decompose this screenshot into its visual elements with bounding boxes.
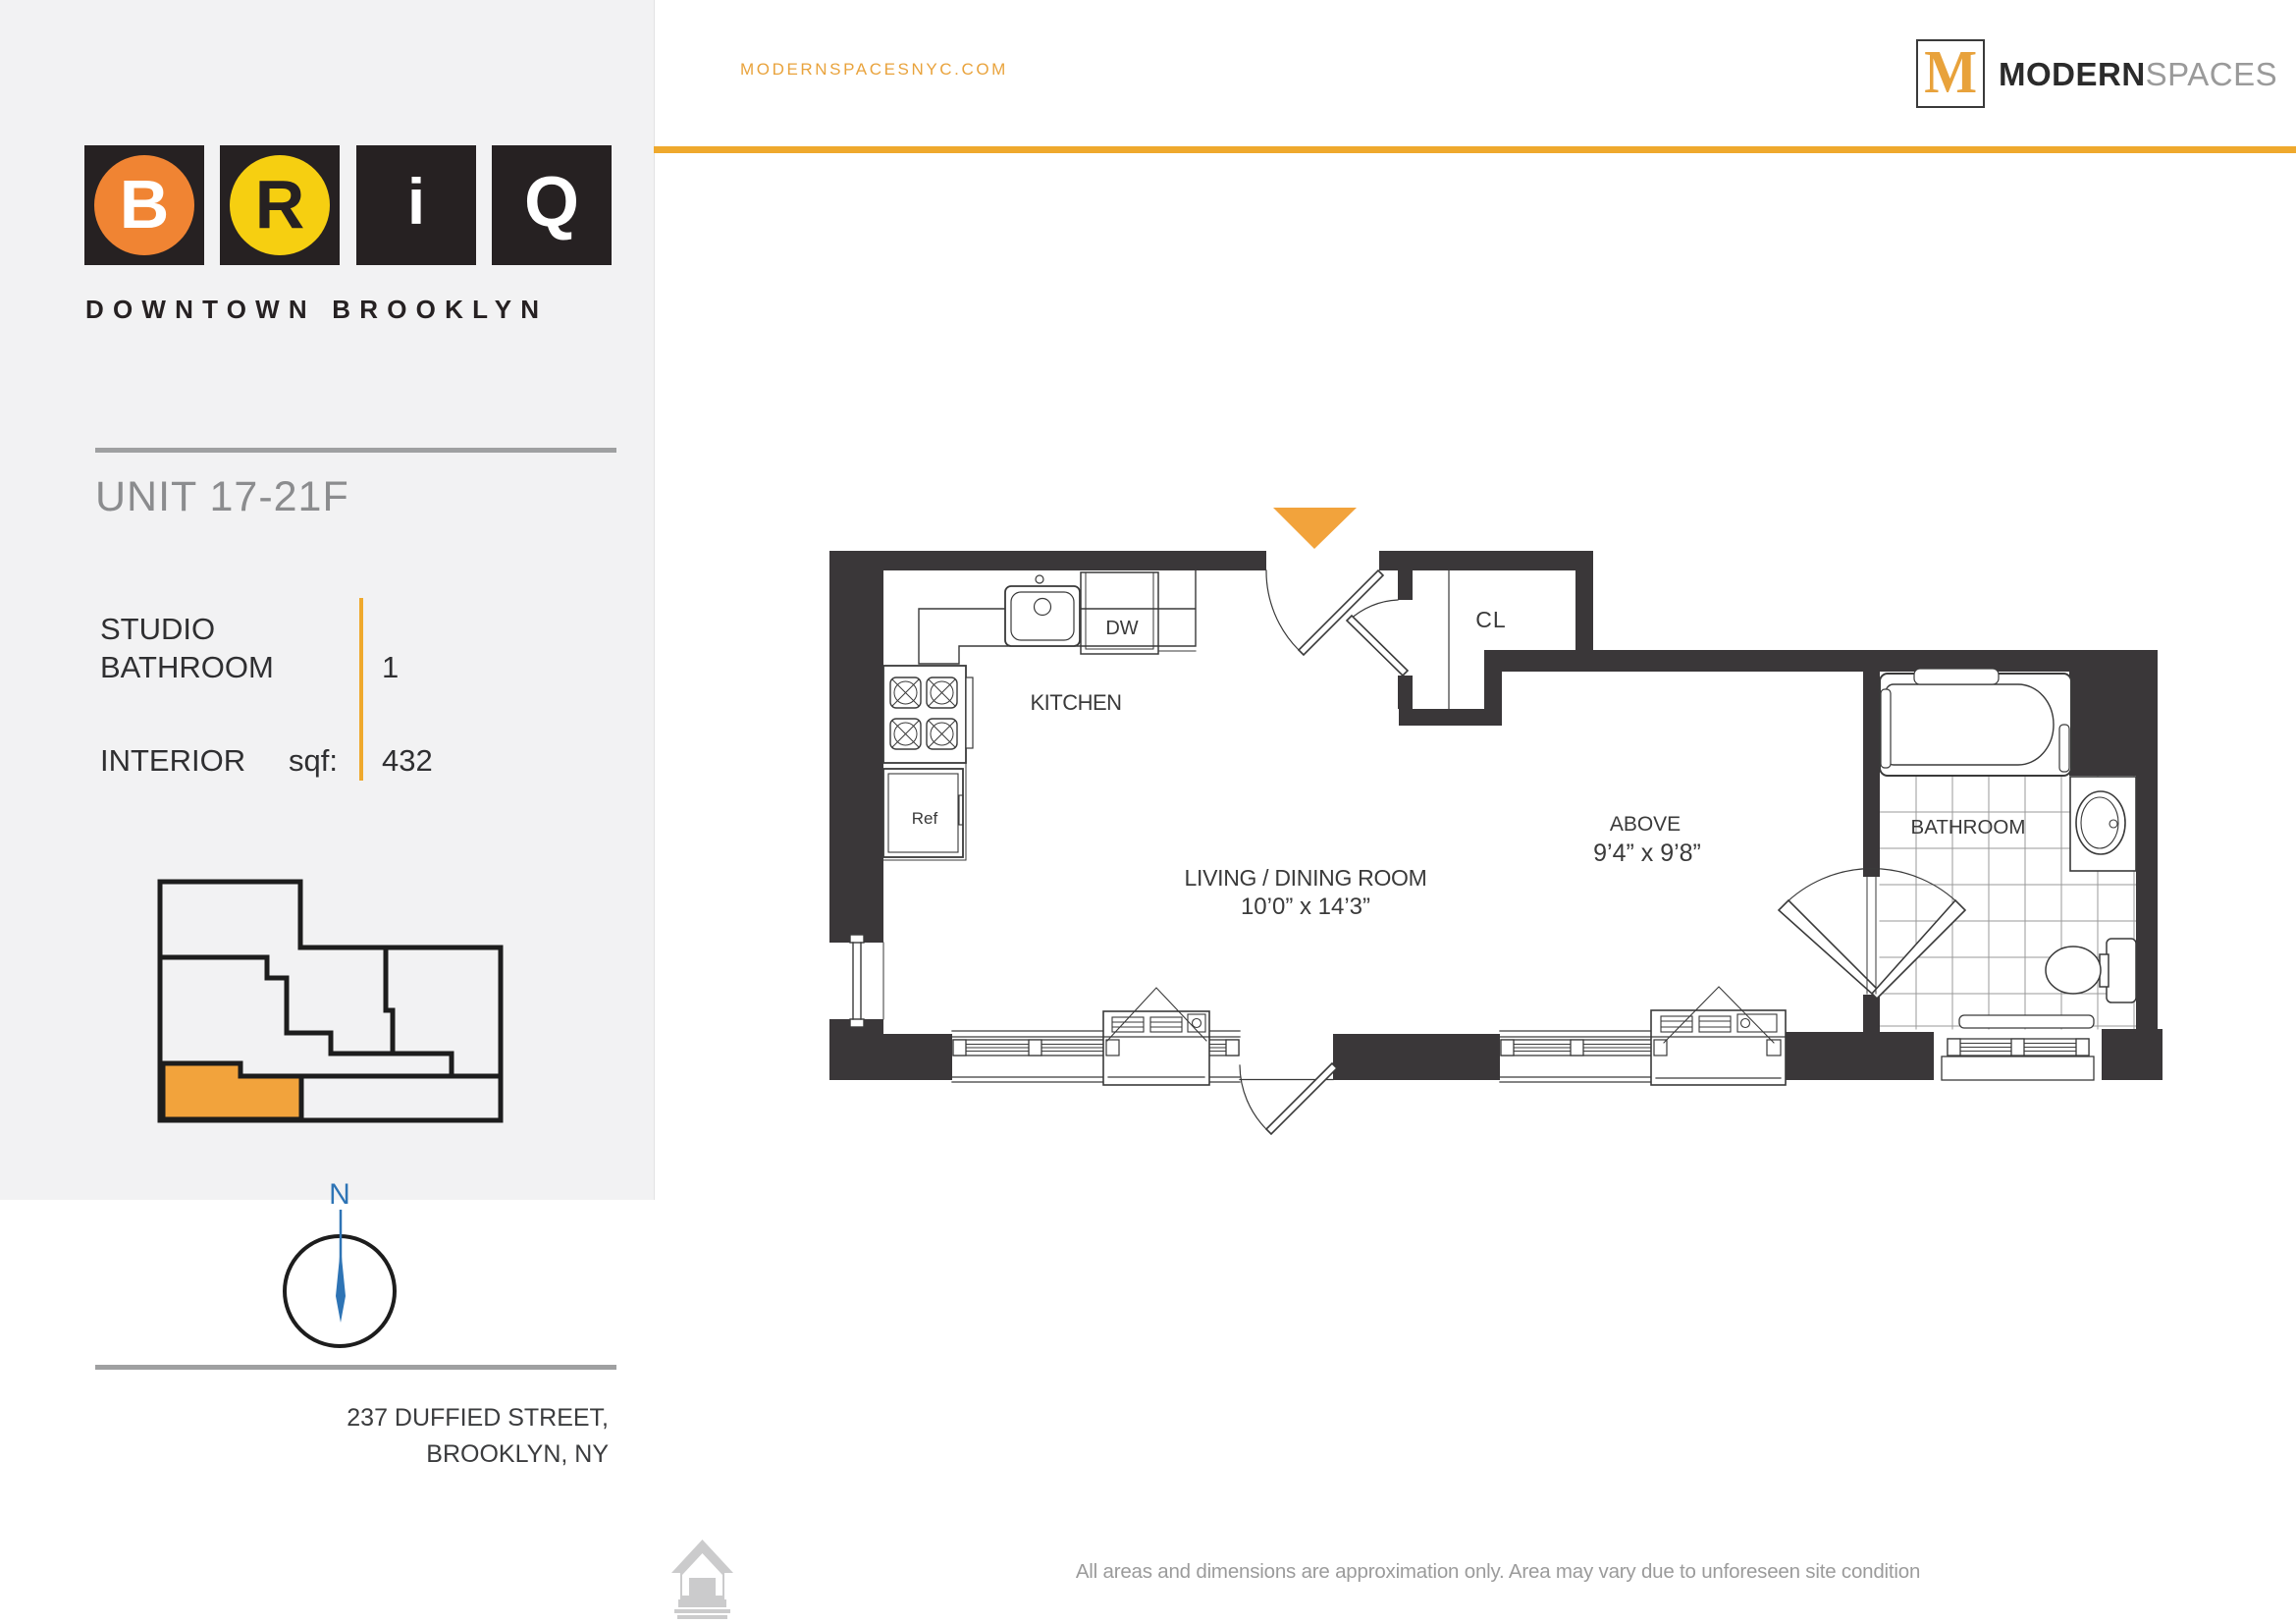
svg-text:9’4” x 9’8”: 9’4” x 9’8” — [1593, 839, 1701, 867]
svg-text:KITCHEN: KITCHEN — [1030, 690, 1121, 715]
svg-text:ABOVE: ABOVE — [1610, 813, 1681, 836]
svg-text:LIVING / DINING ROOM: LIVING / DINING ROOM — [1184, 865, 1426, 891]
svg-text:10’0” x 14’3”: 10’0” x 14’3” — [1241, 893, 1370, 920]
svg-text:Ref: Ref — [912, 809, 938, 828]
svg-text:DW: DW — [1105, 618, 1138, 639]
svg-text:BATHROOM: BATHROOM — [1911, 816, 2026, 839]
svg-text:CL: CL — [1475, 607, 1506, 632]
